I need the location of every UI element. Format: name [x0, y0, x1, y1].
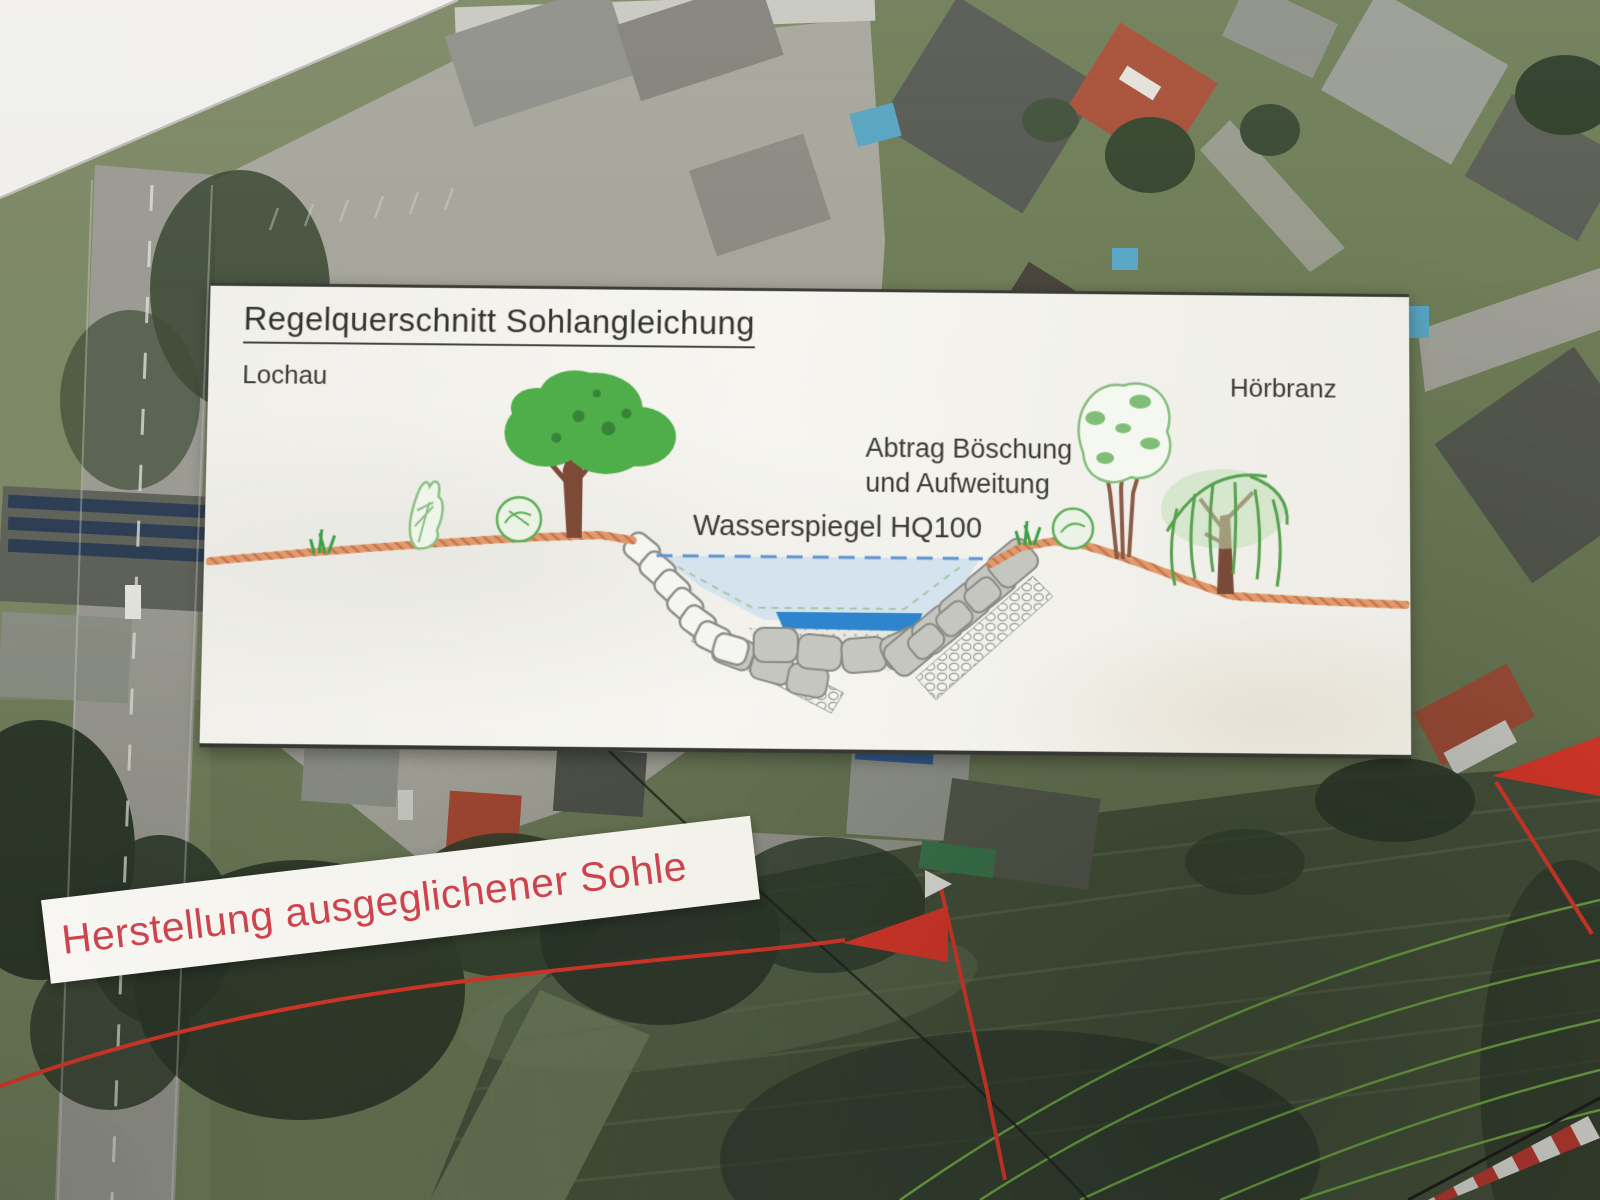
place-label-lochau: Lochau	[242, 359, 328, 391]
place-label-hoerbranz: Hörbranz	[1230, 373, 1337, 405]
excavation-annotation-line1: Abtrag Böschung	[865, 431, 1072, 468]
water-level-label: Wasserspiegel HQ100	[693, 510, 982, 546]
panel-title: Regelquerschnitt Sohlangleichung	[243, 300, 755, 348]
excavation-annotation: Abtrag Böschung und Aufweitung	[865, 431, 1072, 503]
cross-section-panel: Regelquerschnitt Sohlangleichung Lochau …	[199, 283, 1411, 759]
excavation-annotation-line2: und Aufweitung	[865, 466, 1072, 503]
photographed-info-board: Regelquerschnitt Sohlangleichung Lochau …	[0, 0, 1600, 1200]
